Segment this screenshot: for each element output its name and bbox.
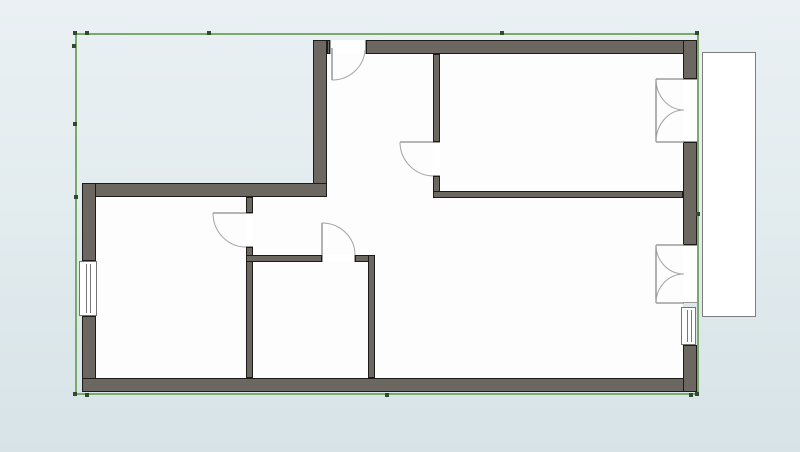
selection-handle[interactable] [695, 392, 699, 396]
selection-handle[interactable] [85, 31, 89, 35]
balcony[interactable] [702, 52, 756, 317]
selection-handle[interactable] [207, 31, 211, 35]
selection-handle[interactable] [85, 393, 89, 397]
selection-handle[interactable] [74, 195, 78, 199]
selection-handle[interactable] [695, 31, 699, 35]
selection-handle[interactable] [73, 392, 77, 396]
selection-handle[interactable] [696, 212, 700, 216]
selection-outline[interactable] [75, 33, 699, 395]
selection-handle[interactable] [500, 31, 504, 35]
floor-plan-canvas[interactable] [0, 0, 800, 452]
selection-handle[interactable] [689, 393, 693, 397]
selection-handle[interactable] [385, 393, 389, 397]
selection-handle[interactable] [73, 122, 77, 126]
selection-handle[interactable] [72, 44, 76, 48]
selection-handle[interactable] [73, 31, 77, 35]
